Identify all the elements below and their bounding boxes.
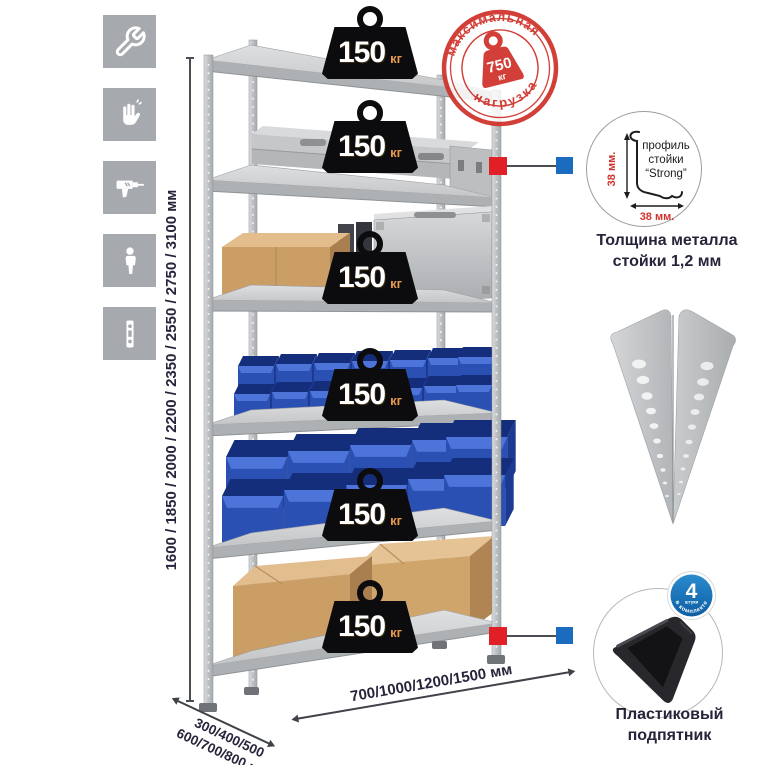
callout-line-top <box>507 165 557 167</box>
callout-marker-blue-top <box>556 157 573 174</box>
foot-caption: Пластиковый подпятник <box>592 705 747 747</box>
profile-label: стойки <box>648 154 683 166</box>
quantity-badge: 4 штуки в комплекте <box>668 572 715 619</box>
weight-badge: 150кг <box>322 100 418 173</box>
profile-dim-horizontal: 38 мм. <box>640 211 675 223</box>
profile-label: “Strong” <box>645 168 687 180</box>
product-infographic: 1600 / 1850 / 2000 / 2200 / 2350 / 2550 … <box>0 0 765 765</box>
badge-sub-label: штуки <box>685 600 699 605</box>
weight-badge: 150кг <box>322 231 418 304</box>
weight-badge: 150кг <box>322 6 418 79</box>
callout-marker-red-top <box>489 157 507 175</box>
callout-marker-blue-bottom <box>556 627 573 644</box>
profile-dim-vertical: 38 мм. <box>606 152 618 187</box>
angle-post-image <box>593 300 748 535</box>
profile-label: профиль <box>642 140 690 152</box>
callout-line-bottom <box>507 635 557 637</box>
callout-marker-red-bottom <box>489 627 507 645</box>
profile-detail-circle: 38 мм. 38 мм. профиль стойки “Strong” <box>586 111 702 227</box>
weight-badge: 150кг <box>322 580 418 653</box>
weight-badge: 150кг <box>322 468 418 541</box>
profile-caption: Толщина металла стойки 1,2 мм <box>577 231 757 273</box>
weight-badge: 150кг <box>322 348 418 421</box>
